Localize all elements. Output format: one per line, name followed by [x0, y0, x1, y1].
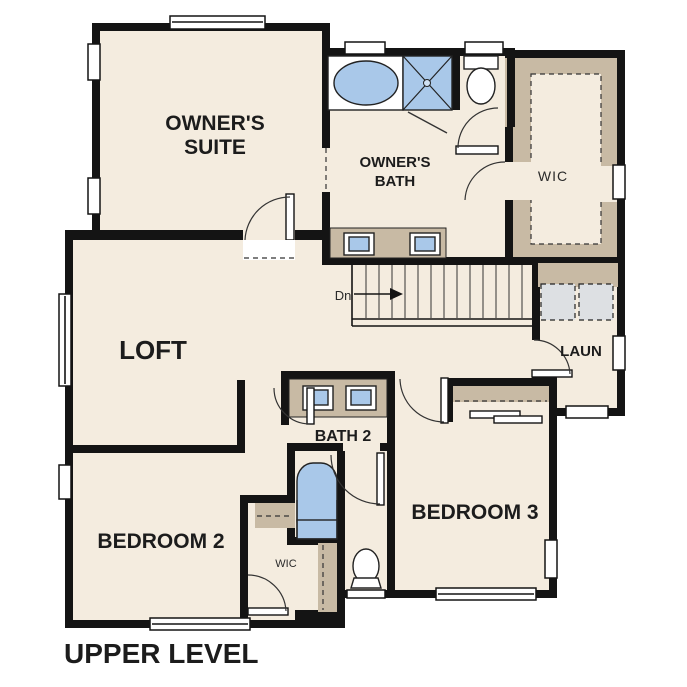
window [613, 165, 625, 199]
window [436, 588, 536, 600]
window [59, 294, 71, 386]
owners-wic-label: WIC [538, 168, 568, 184]
window [170, 16, 265, 29]
owners-suite-label-line2: SUITE [184, 136, 246, 159]
stairs-down-label: Dn [335, 288, 352, 303]
window [150, 618, 250, 630]
floor-plan: OWNER'S SUITE OWNER'S BATH WIC LOFT Dn L… [0, 0, 687, 687]
floor-plan-drawing: OWNER'S SUITE OWNER'S BATH WIC LOFT Dn L… [0, 0, 687, 687]
double-vanity-icon [289, 379, 387, 417]
bedroom3-label: BEDROOM 3 [411, 501, 538, 524]
window [613, 336, 625, 370]
window [566, 406, 608, 418]
window [345, 42, 385, 54]
washer-icon [541, 284, 575, 320]
owners-suite-label-line1: OWNER'S [165, 112, 265, 135]
owners-wic-shelving [505, 50, 625, 265]
double-vanity-icon [330, 228, 446, 258]
toilet-icon [464, 56, 498, 104]
bedroom2-label: BEDROOM 2 [97, 530, 224, 553]
bath2-label: BATH 2 [315, 428, 372, 445]
bathtub-icon [328, 56, 403, 110]
dryer-icon [579, 284, 613, 320]
window [59, 465, 71, 499]
owners-bath-label-line2: BATH [375, 173, 416, 190]
laundry-label: LAUN [560, 343, 602, 360]
bathtub-icon [297, 463, 337, 539]
window [545, 540, 557, 578]
window [465, 42, 503, 54]
plan-title: UPPER LEVEL [64, 638, 258, 669]
bedroom2-wic-label: WIC [275, 558, 296, 570]
loft-label: LOFT [119, 335, 187, 365]
window [88, 178, 100, 214]
owners-bath-label-line1: OWNER'S [359, 154, 430, 171]
window [88, 44, 100, 80]
